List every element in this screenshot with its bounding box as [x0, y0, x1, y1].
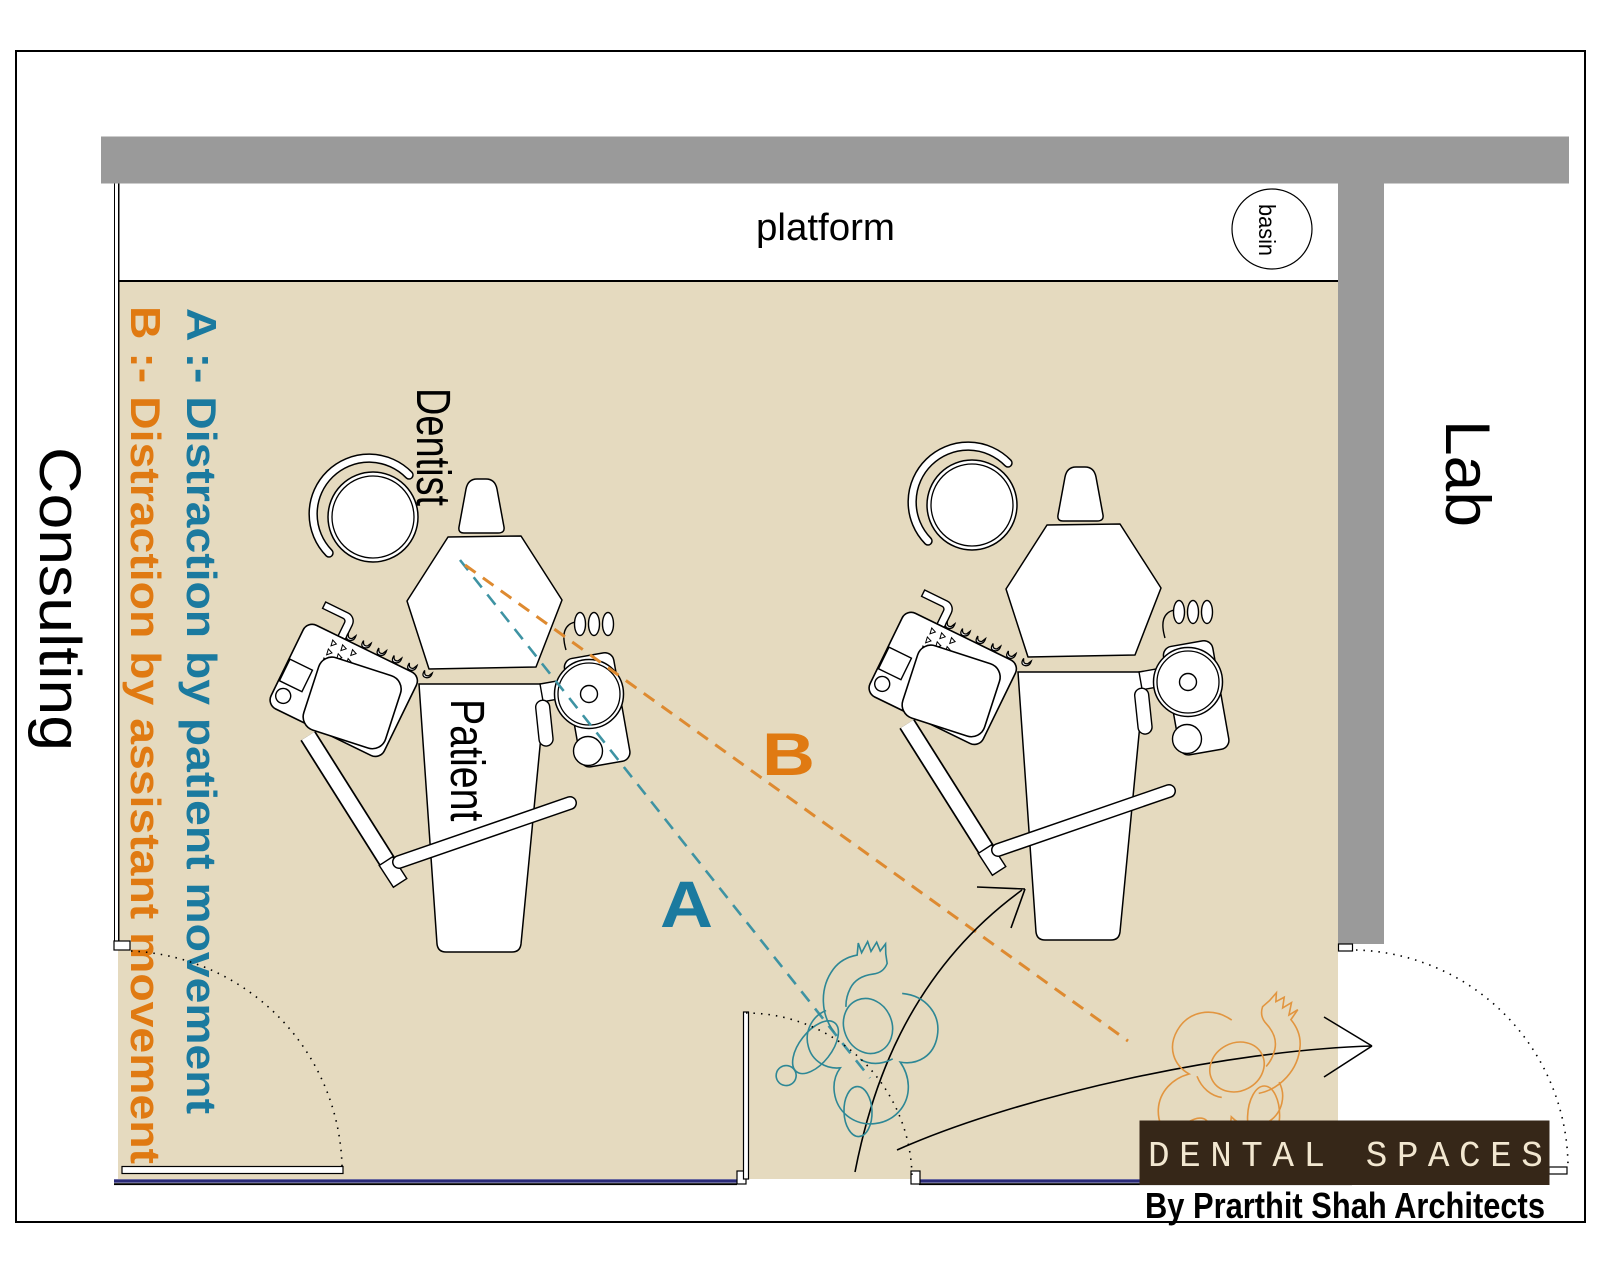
- svg-text:Dentist: Dentist: [406, 388, 459, 506]
- svg-text:A: A: [660, 867, 713, 941]
- svg-text:Patient: Patient: [440, 699, 494, 822]
- svg-text:B: B: [762, 721, 815, 788]
- svg-text:By Prarthit Shah Architects: By Prarthit Shah Architects: [1145, 1185, 1545, 1226]
- svg-text:A :- Distraction by patient mo: A :- Distraction by patient movement: [178, 308, 225, 1114]
- svg-text:basin: basin: [1254, 204, 1280, 256]
- svg-text:DENTAL SPACES: DENTAL SPACES: [1148, 1136, 1552, 1177]
- svg-text:Lab: Lab: [1432, 420, 1502, 527]
- svg-text:B :- Distraction by assistant: B :- Distraction by assistant movement: [122, 306, 169, 1164]
- svg-text:Consulting: Consulting: [27, 447, 92, 751]
- svg-text:platform: platform: [756, 207, 895, 249]
